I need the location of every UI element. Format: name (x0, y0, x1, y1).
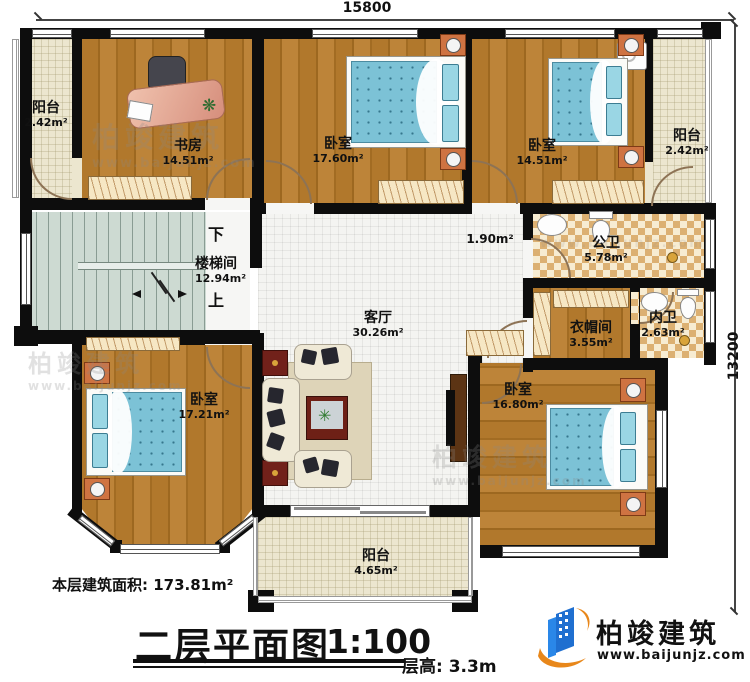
closet-bedroom-n (378, 180, 464, 204)
window-bay-front (120, 544, 220, 554)
window-bath-private (705, 291, 715, 343)
title-rule-thick (133, 659, 405, 663)
label-stairwell: 楼梯间 12.94m² (195, 256, 273, 285)
dimension-top-line (36, 19, 734, 21)
wall-pier-ne (701, 22, 721, 39)
label-living: 客厅 30.26m² (338, 310, 418, 339)
label-study: 书房 14.51m² (150, 138, 226, 167)
cushion (321, 347, 340, 366)
pillow (92, 394, 108, 429)
floor-area-note: 本层建筑面积: 173.81m² (52, 574, 233, 595)
window-bedroom-se-right (656, 410, 667, 488)
pillow (442, 64, 459, 101)
floor-plan-canvas: ❋ ✳ (0, 0, 750, 682)
sliding-door-leaf-2 (360, 511, 426, 514)
nightstand (84, 478, 110, 500)
brand-url: www.baijunjz.com (597, 648, 746, 663)
brand-logo-icon (536, 604, 592, 668)
pillow (620, 412, 636, 445)
pillow (620, 449, 636, 482)
side-table (262, 460, 288, 486)
closet-hall (466, 330, 524, 356)
label-bath-private: 内卫 2.63m² (634, 310, 692, 339)
window-bedroom-se-bottom (502, 546, 640, 557)
sliding-door-leaf-1 (294, 507, 360, 510)
label-cloakroom: 衣帽间 3.55m² (556, 320, 626, 349)
nightstand (618, 34, 644, 56)
closet-bedroom-sw (86, 337, 180, 351)
window-balcony-ne-top (657, 29, 703, 38)
nightstand (618, 146, 644, 168)
window-bedroom-n (312, 29, 418, 38)
door-gap-balcony-nw (72, 158, 82, 198)
shower-drain-public (667, 252, 678, 263)
label-balcony-ne: 阳台 2.42m² (652, 128, 722, 157)
closet-bedroom-ne (552, 180, 644, 204)
label-stairs-up: 上 (196, 292, 236, 311)
stair-arrow-left (132, 290, 141, 298)
toilet-tank-public (589, 211, 613, 219)
wall-pier-sw (14, 326, 38, 346)
floor-height-note: 层高: 3.3m (402, 652, 497, 677)
cushion (301, 349, 318, 366)
label-hall-area: 1.90m² (452, 232, 528, 246)
toilet-tank-private (677, 289, 699, 296)
tv (446, 390, 455, 446)
pillow (442, 105, 459, 142)
nightstand (440, 34, 466, 56)
wall-bath-mid (523, 278, 716, 288)
label-bedroom-sw: 卧室 17.21m² (164, 392, 244, 421)
wall-bedroom-sw-left (72, 333, 82, 513)
stairs (24, 212, 206, 330)
label-bedroom-ne: 卧室 14.51m² (504, 138, 580, 167)
window-bath-public (705, 219, 715, 269)
dimension-right-value: 13200 (726, 324, 742, 388)
window-stairwell (21, 233, 31, 305)
cushion (321, 459, 340, 478)
label-balcony-nw: 阳台 2.42m² (16, 100, 76, 129)
pillow (606, 103, 622, 136)
sink-bath-private (641, 292, 668, 312)
bed-sheet-sw (104, 390, 132, 474)
closet-study (88, 176, 192, 200)
wall-cloak-bottom (523, 358, 668, 370)
rail-balcony-s (258, 596, 472, 603)
pillow (606, 66, 622, 99)
rail-balcony-s-right (468, 517, 473, 596)
nightstand (84, 362, 110, 384)
sink-bath-public (537, 214, 567, 236)
label-bedroom-se: 卧室 16.80m² (478, 382, 558, 411)
window-study (110, 29, 205, 38)
rail-balcony-s-left (253, 517, 258, 596)
printer (127, 100, 154, 122)
plant-icon: ✳ (318, 406, 331, 425)
plant-icon: ❋ (202, 96, 216, 116)
door-gap-bedroom-ne (472, 203, 520, 214)
brand-name: 柏竣建筑 (596, 612, 720, 651)
label-stairs-down: 下 (196, 226, 236, 245)
dimension-top-value: 15800 (332, 0, 402, 16)
nightstand (440, 148, 466, 170)
label-balcony-s: 阳台 4.65m² (336, 548, 416, 577)
closet-cloakroom-top (553, 290, 629, 308)
window-balcony-nw-top (32, 29, 72, 38)
stair-arrow-right (178, 290, 187, 298)
nightstand (620, 378, 646, 402)
pillow (92, 433, 108, 468)
nightstand (620, 492, 646, 516)
wall-study-bedroom (252, 28, 264, 203)
window-bedroom-ne (505, 29, 615, 38)
closet-cloakroom-left (533, 292, 551, 356)
title-rule-thin (133, 666, 405, 668)
label-bath-public: 公卫 5.78m² (572, 235, 640, 264)
cushion (267, 387, 284, 404)
building-logo-icon (536, 604, 592, 668)
side-table (262, 350, 288, 376)
rail-balcony-ne (705, 39, 712, 203)
label-bedroom-n: 卧室 17.60m² (300, 136, 376, 165)
door-gap-bedroom-n (266, 203, 314, 214)
stair-handrail (78, 262, 206, 270)
dimension-right-line (734, 24, 736, 612)
